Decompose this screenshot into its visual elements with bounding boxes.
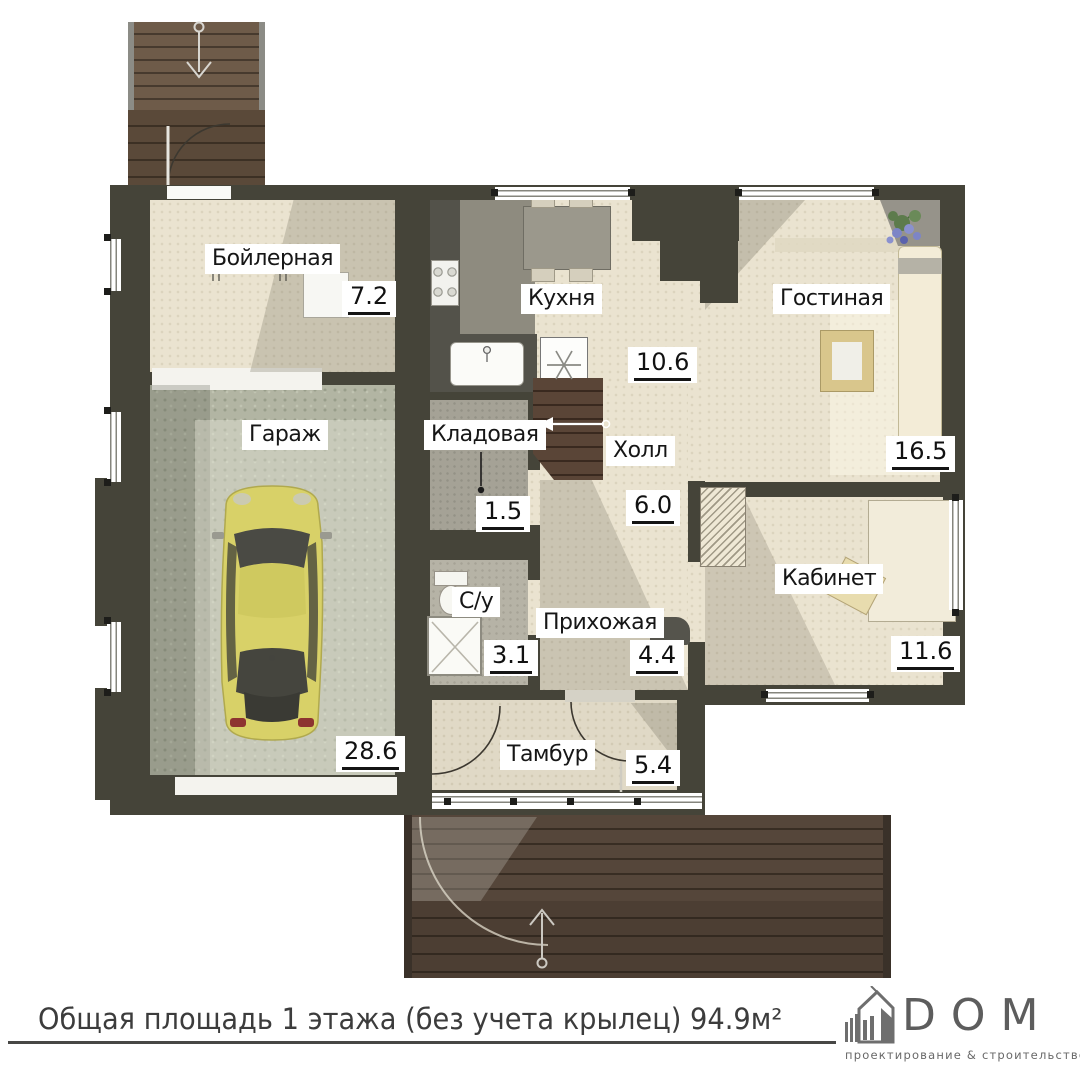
office-window-right (949, 500, 963, 610)
mullion (491, 189, 498, 196)
mullion (104, 479, 111, 486)
mullion (567, 798, 574, 805)
room-label-garage: Гараж (242, 420, 328, 450)
mullion (104, 689, 111, 696)
room-label-entry: Прихожая (536, 608, 664, 638)
living-window (739, 187, 874, 200)
room-area-hall: 6.0 (626, 490, 680, 526)
top-porch-deck (128, 110, 265, 185)
stove (431, 260, 459, 306)
room-area-bathroom: 3.1 (484, 640, 538, 676)
opening-entry-vestibule (565, 690, 635, 702)
mullion (104, 234, 111, 241)
room-area-boiler: 7.2 (342, 281, 396, 317)
shower-tray (427, 616, 482, 676)
room-label-office: Кабинет (775, 564, 883, 594)
footer-divider (8, 1041, 836, 1044)
mullion (952, 494, 959, 501)
office-window-bottom (766, 689, 869, 702)
room-label-bathroom: С/у (452, 587, 500, 617)
mullion (104, 407, 111, 414)
top-porch-rail-right (259, 22, 265, 110)
wardrobe (700, 487, 746, 567)
room-label-kitchen: Кухня (521, 284, 602, 314)
toilet-tank (434, 571, 468, 586)
wall-pier-step2 (700, 281, 738, 303)
floor-plan-page: Бойлерная 7.2 Кухня 10.6 Гостиная 16.5 Г… (0, 0, 1080, 1080)
mullion (634, 798, 641, 805)
wall-pier-step (660, 241, 738, 281)
office-desk (868, 500, 956, 622)
dining-table (523, 206, 611, 270)
dining-chair (531, 268, 555, 282)
bottom-porch-post-left (404, 815, 412, 978)
coffee-table-top (832, 342, 862, 380)
logo-tagline: проектирование & строительство (845, 1048, 1080, 1062)
room-label-living: Гостиная (773, 284, 890, 314)
room-area-garage: 28.6 (336, 736, 405, 772)
kitchen-window (495, 187, 630, 200)
mullion (761, 691, 768, 698)
mullion (444, 798, 451, 805)
room-label-hall: Холл (606, 436, 675, 466)
mullion (872, 189, 879, 196)
room-area-vestibule: 5.4 (626, 750, 680, 786)
top-porch-stairs (128, 22, 265, 110)
boiler-window (107, 239, 121, 291)
garage-drive-strip (195, 420, 395, 775)
room-label-storage: Кладовая (424, 420, 546, 450)
room-area-kitchen: 10.6 (628, 347, 697, 383)
top-porch-rail-left (128, 22, 134, 110)
porch-door-opening (167, 186, 231, 199)
room-area-entry: 4.4 (630, 640, 684, 676)
room-area-living: 16.5 (886, 436, 955, 472)
room-area-office: 11.6 (891, 636, 960, 672)
logo-house-icon (843, 986, 897, 1044)
mullion (735, 189, 742, 196)
dining-chair (569, 268, 593, 282)
mullion (104, 617, 111, 624)
left-wall-pilaster-b (95, 688, 148, 800)
opening-entry-office (688, 562, 705, 642)
sofa-pillow (898, 258, 942, 274)
room-label-vestibule: Тамбур (500, 740, 595, 770)
mullion (104, 288, 111, 295)
garage-gate (175, 777, 397, 795)
mullion (952, 609, 959, 616)
bottom-porch-post-right (883, 815, 891, 978)
bottom-porch-stairs (404, 901, 891, 978)
garage-window-1 (107, 412, 121, 482)
left-wall-pilaster-a (95, 478, 148, 626)
room-area-storage: 1.5 (476, 496, 530, 532)
wall-pier-top (632, 185, 739, 241)
logo-name: DOM (902, 990, 1053, 1041)
garage-window-2 (107, 622, 121, 692)
kitchen-sink (450, 342, 524, 386)
mullion (628, 189, 635, 196)
room-label-boiler: Бойлерная (205, 244, 340, 274)
total-area-caption: Общая площадь 1 этажа (без учета крылец)… (38, 1002, 782, 1036)
mullion (867, 691, 874, 698)
mullion (510, 798, 517, 805)
